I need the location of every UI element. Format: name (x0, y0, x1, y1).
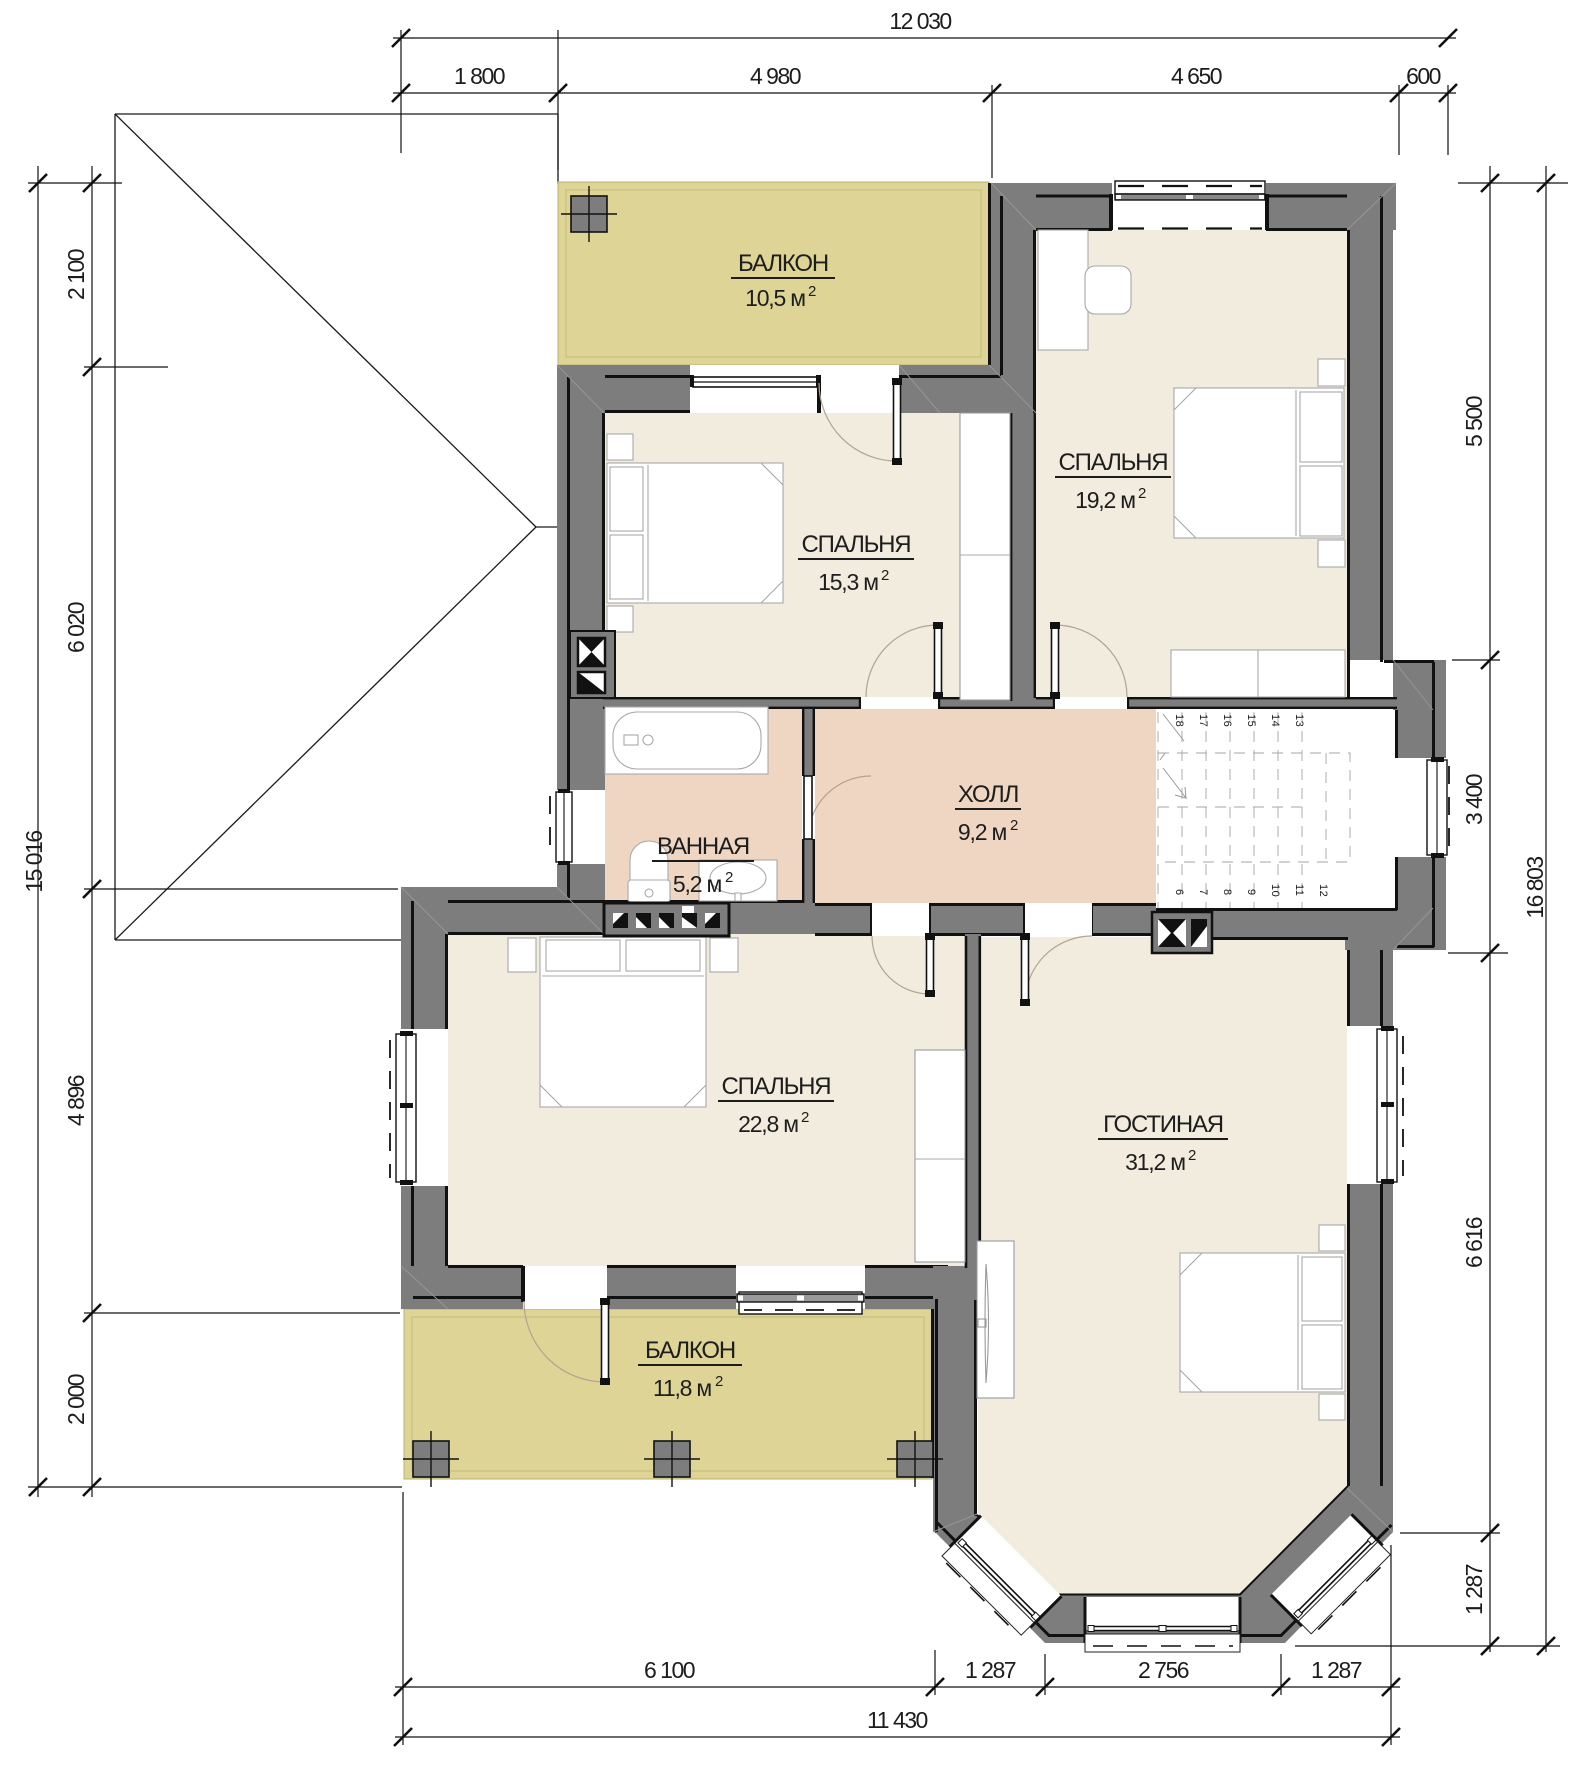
svg-text:18: 18 (1173, 714, 1185, 727)
svg-text:11: 11 (1293, 884, 1305, 896)
svg-text:15: 15 (1245, 714, 1257, 727)
svg-text:3 400: 3 400 (1461, 774, 1487, 825)
svg-text:11 430: 11 430 (867, 1707, 927, 1733)
svg-text:2: 2 (808, 283, 816, 300)
svg-text:2: 2 (725, 869, 733, 886)
svg-text:31,2 м: 31,2 м (1125, 1149, 1185, 1175)
svg-text:СПАЛЬНЯ: СПАЛЬНЯ (1059, 449, 1168, 476)
svg-text:2 100: 2 100 (63, 249, 89, 300)
svg-text:5 500: 5 500 (1461, 396, 1487, 447)
svg-text:ХОЛЛ: ХОЛЛ (958, 781, 1018, 808)
svg-text:19,2 м: 19,2 м (1075, 487, 1135, 513)
svg-text:12 030: 12 030 (889, 8, 951, 34)
svg-text:1 287: 1 287 (1461, 1564, 1487, 1615)
svg-text:22,8 м: 22,8 м (738, 1111, 798, 1137)
svg-text:16 803: 16 803 (1522, 857, 1548, 919)
svg-text:4 650: 4 650 (1171, 63, 1222, 89)
svg-text:БАЛКОН: БАЛКОН (645, 1337, 735, 1364)
svg-text:15 016: 15 016 (21, 831, 47, 893)
svg-text:СПАЛЬНЯ: СПАЛЬНЯ (802, 531, 911, 558)
svg-text:4 980: 4 980 (750, 63, 801, 89)
svg-text:8: 8 (1221, 889, 1233, 896)
svg-text:14: 14 (1269, 714, 1281, 727)
svg-text:ГОСТИНАЯ: ГОСТИНАЯ (1103, 1111, 1223, 1138)
svg-text:2: 2 (881, 567, 889, 584)
svg-text:10,5 м: 10,5 м (745, 285, 805, 311)
svg-text:11,8 м: 11,8 м (653, 1375, 711, 1401)
svg-text:ВАННАЯ: ВАННАЯ (657, 833, 749, 860)
svg-text:4 896: 4 896 (63, 1075, 89, 1126)
svg-text:6 100: 6 100 (644, 1657, 695, 1683)
svg-text:2: 2 (1188, 1147, 1196, 1164)
svg-text:5,2 м: 5,2 м (673, 871, 722, 897)
svg-text:6 616: 6 616 (1461, 1217, 1487, 1268)
svg-text:7: 7 (1197, 889, 1209, 896)
svg-text:9: 9 (1245, 889, 1257, 896)
svg-text:10: 10 (1269, 884, 1281, 897)
svg-text:БАЛКОН: БАЛКОН (738, 250, 828, 277)
svg-text:1 287: 1 287 (1311, 1657, 1362, 1683)
svg-text:2: 2 (801, 1109, 809, 1126)
svg-text:9,2 м: 9,2 м (958, 819, 1007, 845)
svg-text:15,3 м: 15,3 м (818, 569, 878, 595)
svg-text:1 800: 1 800 (454, 63, 505, 89)
svg-text:2: 2 (715, 1373, 723, 1390)
svg-text:1 287: 1 287 (965, 1657, 1016, 1683)
svg-text:2: 2 (1010, 817, 1018, 834)
svg-text:600: 600 (1406, 63, 1441, 89)
svg-text:2 000: 2 000 (63, 1374, 89, 1425)
svg-text:6: 6 (1173, 889, 1185, 896)
svg-text:13: 13 (1293, 714, 1305, 727)
svg-text:12: 12 (1317, 884, 1329, 897)
svg-text:2: 2 (1138, 485, 1146, 502)
svg-text:СПАЛЬНЯ: СПАЛЬНЯ (722, 1073, 831, 1100)
svg-text:2 756: 2 756 (1138, 1657, 1189, 1683)
svg-text:16: 16 (1221, 714, 1233, 727)
svg-text:6 020: 6 020 (63, 602, 89, 653)
svg-text:17: 17 (1197, 714, 1209, 727)
